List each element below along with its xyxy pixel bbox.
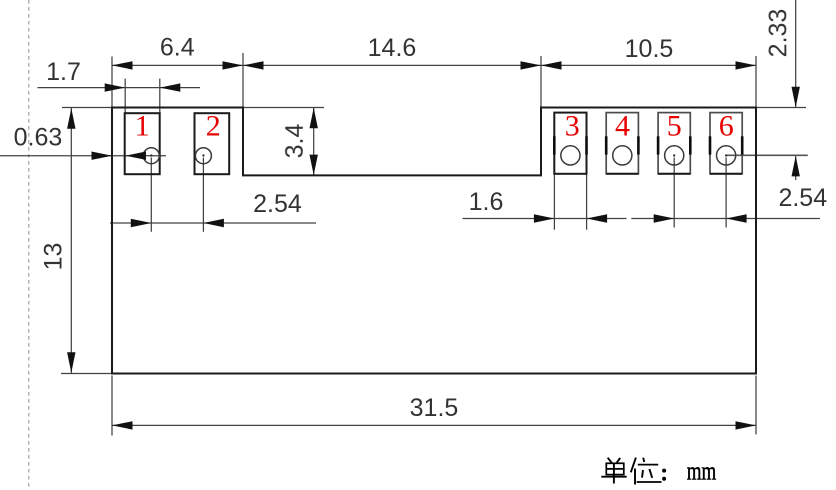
svg-text:4: 4 <box>615 109 630 142</box>
svg-text:1.7: 1.7 <box>46 58 81 86</box>
svg-text:6: 6 <box>719 109 734 142</box>
svg-text:mm: mm <box>687 456 717 485</box>
svg-text:3.4: 3.4 <box>281 124 309 159</box>
svg-text:0.63: 0.63 <box>14 124 63 152</box>
svg-text:10.5: 10.5 <box>625 35 674 63</box>
svg-text:5: 5 <box>667 109 682 142</box>
svg-text:2.33: 2.33 <box>764 9 792 58</box>
svg-text:13: 13 <box>40 243 68 271</box>
svg-text:31.5: 31.5 <box>410 394 459 422</box>
svg-text:6.4: 6.4 <box>160 34 195 62</box>
svg-text:3: 3 <box>565 109 580 142</box>
svg-text:14.6: 14.6 <box>368 34 417 62</box>
svg-text:1.6: 1.6 <box>469 188 504 216</box>
svg-text:2: 2 <box>206 109 221 142</box>
svg-text:2.54: 2.54 <box>253 190 302 218</box>
svg-text:1: 1 <box>135 109 150 142</box>
svg-text:2.54: 2.54 <box>778 184 827 212</box>
